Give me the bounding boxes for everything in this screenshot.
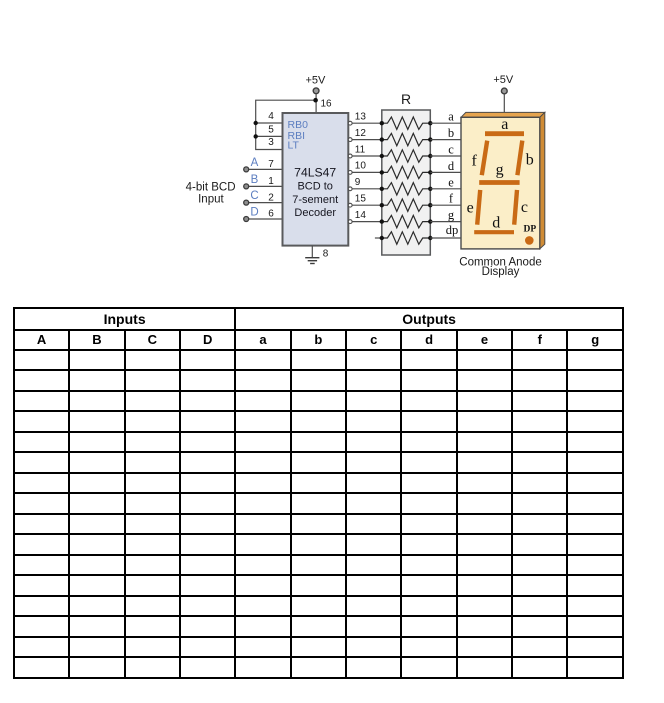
svg-text:5: 5 xyxy=(268,125,274,136)
svg-text:f: f xyxy=(449,192,454,206)
svg-text:c: c xyxy=(448,143,454,157)
svg-text:+5V: +5V xyxy=(305,74,326,86)
svg-text:4: 4 xyxy=(268,111,274,122)
svg-text:10: 10 xyxy=(355,161,367,172)
svg-text:a: a xyxy=(448,110,454,124)
svg-text:16: 16 xyxy=(321,99,333,110)
svg-text:R: R xyxy=(401,91,411,107)
svg-text:12: 12 xyxy=(355,128,367,139)
svg-text:BCD to: BCD to xyxy=(297,181,332,193)
svg-text:g: g xyxy=(448,208,455,222)
svg-text:e: e xyxy=(467,200,474,217)
svg-text:d: d xyxy=(492,214,500,231)
svg-text:3: 3 xyxy=(268,137,274,148)
svg-text:6: 6 xyxy=(268,209,274,220)
svg-text:A: A xyxy=(251,157,259,169)
svg-text:13: 13 xyxy=(355,112,367,123)
svg-text:9: 9 xyxy=(355,177,361,188)
svg-text:d: d xyxy=(448,159,455,173)
svg-text:LT: LT xyxy=(288,139,300,151)
svg-text:DP: DP xyxy=(523,224,536,234)
svg-text:15: 15 xyxy=(355,194,367,205)
svg-text:Decoder: Decoder xyxy=(294,207,336,219)
svg-text:b: b xyxy=(448,126,454,140)
svg-text:1: 1 xyxy=(268,176,274,187)
svg-text:7-sement: 7-sement xyxy=(292,194,338,206)
svg-text:14: 14 xyxy=(355,210,367,221)
svg-text:8: 8 xyxy=(323,249,329,260)
svg-text:D: D xyxy=(250,206,258,218)
svg-text:Display: Display xyxy=(482,266,520,278)
svg-text:7: 7 xyxy=(268,159,274,170)
svg-text:b: b xyxy=(526,151,534,168)
svg-text:C: C xyxy=(250,190,258,202)
svg-text:a: a xyxy=(501,116,508,133)
svg-text:4-bit BCD: 4-bit BCD xyxy=(186,182,236,194)
svg-text:dp: dp xyxy=(446,223,459,237)
svg-text:74LS47: 74LS47 xyxy=(294,165,336,179)
svg-text:c: c xyxy=(521,199,528,216)
svg-text:e: e xyxy=(448,175,454,189)
svg-text:2: 2 xyxy=(268,192,274,203)
svg-text:f: f xyxy=(472,152,478,169)
svg-text:+5V: +5V xyxy=(493,74,514,86)
svg-text:11: 11 xyxy=(355,144,366,155)
svg-text:g: g xyxy=(496,161,504,178)
svg-text:B: B xyxy=(251,174,259,186)
svg-text:Input: Input xyxy=(198,193,224,205)
